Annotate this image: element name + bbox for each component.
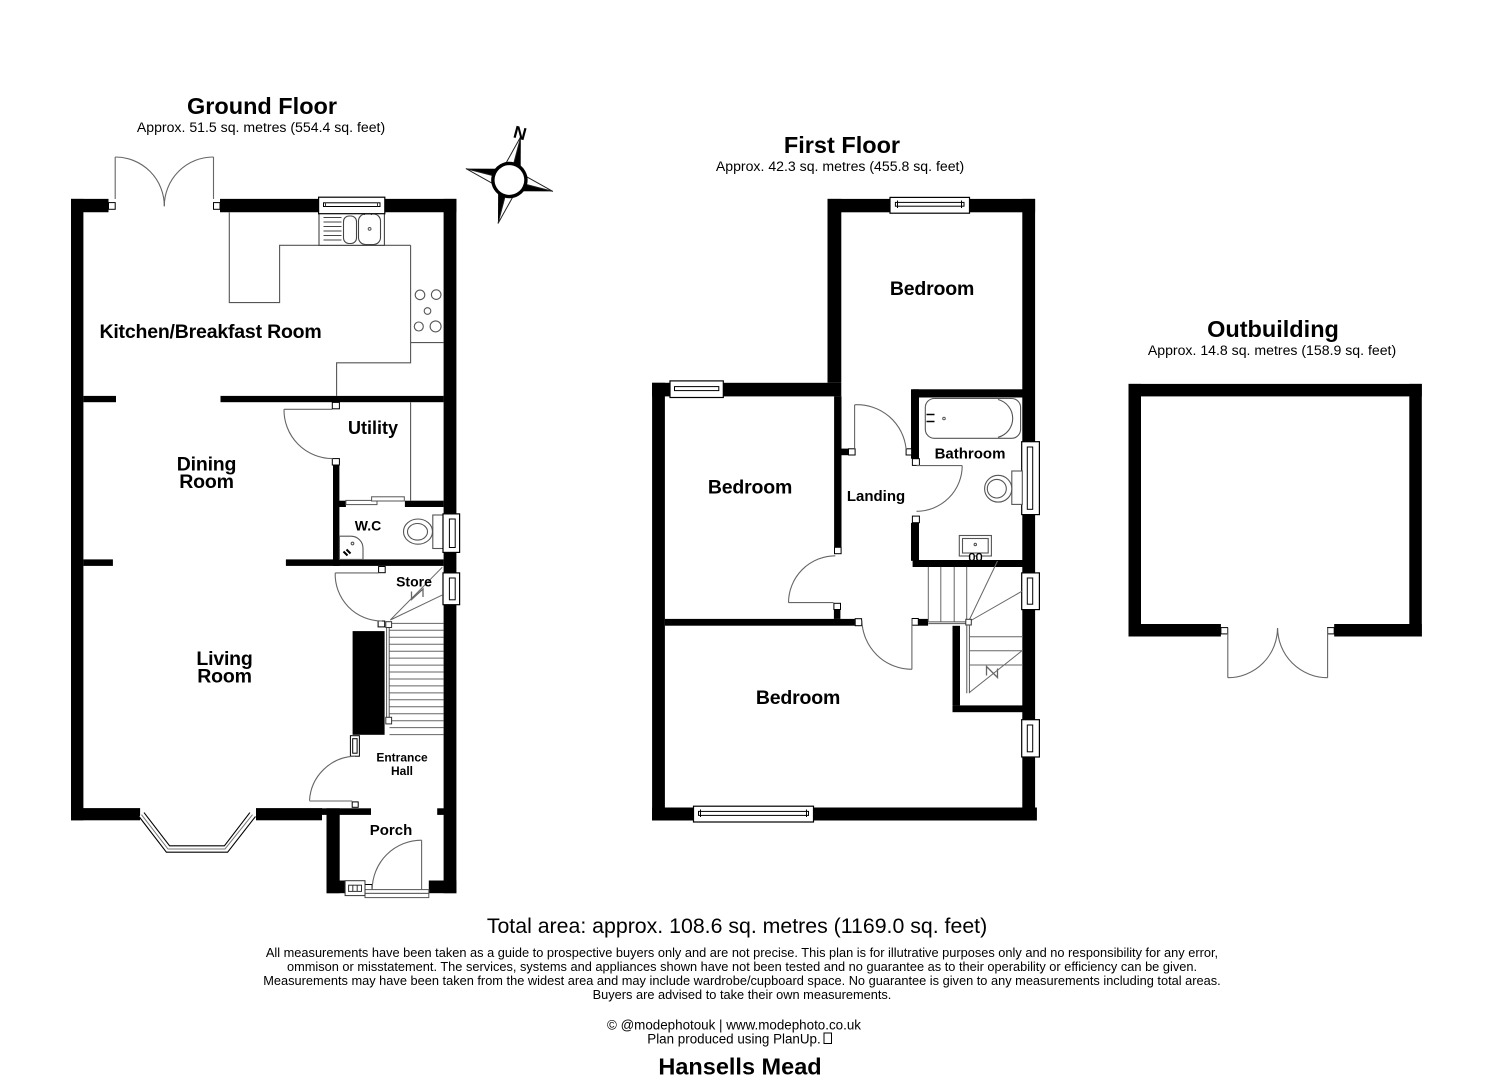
svg-text:Room: Room [179, 471, 233, 493]
svg-text:W.C: W.C [355, 518, 381, 534]
svg-text:Kitchen/Breakfast Room: Kitchen/Breakfast Room [99, 321, 321, 343]
svg-text:Utility: Utility [348, 418, 398, 438]
svg-text:Plan produced using PlanUp.: Plan produced using PlanUp. [647, 1032, 820, 1047]
svg-text:Ground Floor: Ground Floor [187, 93, 337, 119]
svg-text:ommison or misstatement. The s: ommison or misstatement. The services, s… [287, 959, 1197, 974]
svg-text:Entrance: Entrance [376, 751, 428, 765]
svg-text:Buyers are advised to take the: Buyers are advised to take their own mea… [593, 987, 892, 1002]
svg-text:Bathroom: Bathroom [935, 446, 1006, 463]
svg-text:Bedroom: Bedroom [890, 278, 974, 300]
svg-text:Room: Room [197, 666, 251, 688]
svg-text:Measurements may have been tak: Measurements may have been taken from th… [263, 973, 1220, 988]
svg-text:Bedroom: Bedroom [708, 477, 792, 499]
svg-text:All measurements have been tak: All measurements have been taken as a gu… [266, 945, 1218, 960]
svg-text:Porch: Porch [370, 822, 413, 839]
svg-text:First Floor: First Floor [784, 132, 900, 158]
svg-text:Total area: approx. 108.6 sq.: Total area: approx. 108.6 sq. metres (11… [487, 914, 987, 938]
svg-text:Outbuilding: Outbuilding [1207, 316, 1339, 342]
svg-text:Landing: Landing [847, 488, 905, 505]
svg-text:Approx. 51.5 sq. metres (554.4: Approx. 51.5 sq. metres (554.4 sq. feet) [137, 119, 385, 135]
svg-text:Approx. 14.8 sq. metres (158.9: Approx. 14.8 sq. metres (158.9 sq. feet) [1148, 342, 1396, 358]
svg-text:Bedroom: Bedroom [756, 687, 840, 709]
svg-text:Hall: Hall [391, 764, 413, 778]
svg-text:Store: Store [396, 573, 432, 589]
svg-text:© @modephotouk | www.modephoto: © @modephotouk | www.modephoto.co.uk [607, 1018, 861, 1033]
svg-text:Hansells Mead: Hansells Mead [658, 1054, 821, 1080]
svg-text:Approx. 42.3 sq. metres (455.8: Approx. 42.3 sq. metres (455.8 sq. feet) [716, 158, 964, 174]
